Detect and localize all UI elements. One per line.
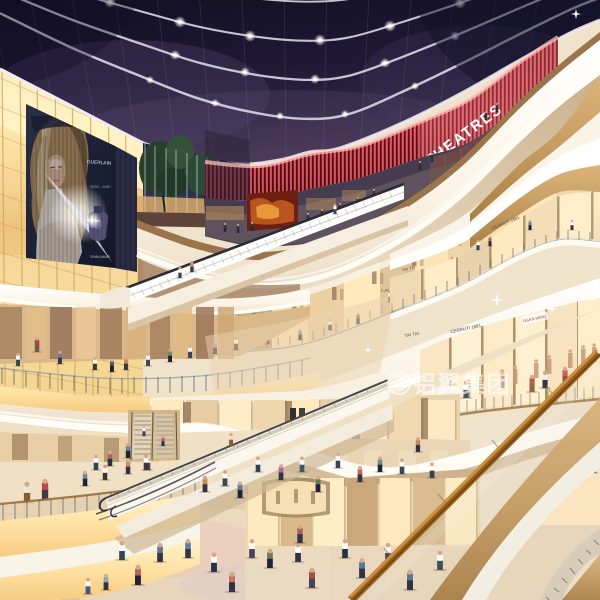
svg-text:SHALIMAR: SHALIMAR	[90, 255, 110, 259]
svg-text:铝翼集团: 铝翼集团	[413, 371, 511, 397]
svg-text:PARIS - LVMH: PARIS - LVMH	[90, 185, 111, 189]
